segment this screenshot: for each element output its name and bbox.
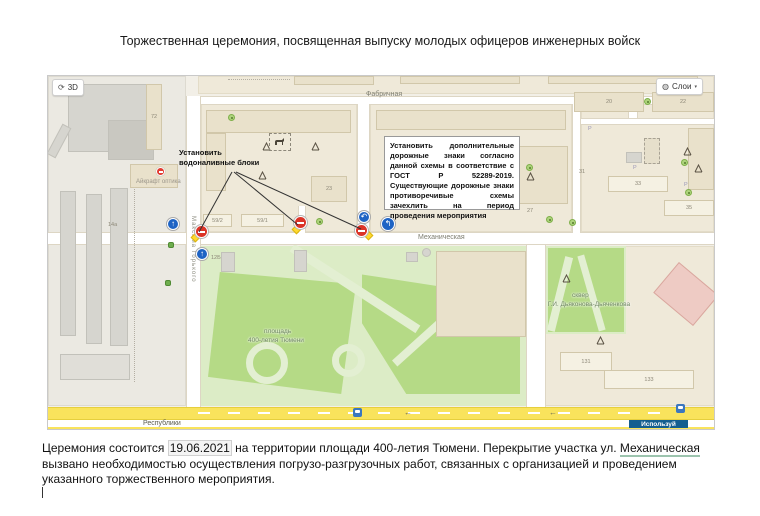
entrance-icon bbox=[165, 280, 171, 286]
parcel-dotted bbox=[134, 186, 135, 382]
playground-icon bbox=[311, 142, 320, 151]
building-131: 131 bbox=[560, 352, 612, 371]
paragraph-text: указанного торжественного мероприятия. bbox=[42, 472, 275, 486]
up-arrow-icon: ↑ bbox=[171, 219, 175, 229]
entrance-icon bbox=[168, 242, 174, 248]
road-center-dashes bbox=[198, 412, 668, 414]
text-cursor bbox=[42, 487, 43, 498]
park-fountain-ring bbox=[332, 344, 365, 377]
building bbox=[294, 76, 374, 85]
body-paragraph: Церемония состоится 19.06.2021 на террит… bbox=[42, 441, 734, 488]
globe-icon: ◍ bbox=[662, 82, 669, 91]
warehouse bbox=[110, 188, 128, 346]
building-label: 23 bbox=[326, 186, 332, 192]
industrial-building bbox=[60, 354, 130, 380]
tree-icon bbox=[228, 114, 235, 121]
playground-icon bbox=[694, 164, 703, 173]
page-title: Торжественная церемония, посвященная вып… bbox=[0, 34, 760, 48]
street-label-mekhanicheskaya: Механическая bbox=[418, 234, 465, 241]
ceremony-date: 19.06.2021 bbox=[168, 440, 232, 456]
traffic-arrow-icon: ← bbox=[404, 408, 412, 417]
layers-label: Слои bbox=[672, 82, 691, 91]
building-59-2: 59/2 bbox=[203, 214, 232, 227]
playground-icon bbox=[596, 336, 605, 345]
warehouse bbox=[60, 191, 76, 336]
bus-stop-icon[interactable] bbox=[353, 408, 362, 417]
street-label-respubliki: Республики bbox=[143, 420, 181, 427]
building-label: 22 bbox=[680, 99, 686, 105]
building-35: 35 bbox=[664, 200, 714, 216]
tree-icon bbox=[569, 219, 576, 226]
annotation-signs-note: Установить дополнительные дорожные знаки… bbox=[384, 136, 520, 210]
tree-icon bbox=[316, 218, 323, 225]
parking-letter: Р bbox=[588, 126, 592, 132]
minor-road bbox=[581, 118, 714, 125]
playground-icon bbox=[562, 274, 571, 283]
warehouse bbox=[86, 194, 102, 344]
building-label: 31 bbox=[579, 169, 585, 175]
building-label: 131 bbox=[581, 359, 590, 365]
document-page: Торжественная церемония, посвященная вып… bbox=[0, 0, 760, 516]
fence-dotted bbox=[228, 79, 290, 80]
park-side-road bbox=[526, 245, 546, 407]
construction-site bbox=[644, 138, 660, 164]
building-59-1: 59/1 bbox=[241, 214, 284, 227]
structure bbox=[294, 250, 307, 272]
paragraph-text: вызвано необходимостью осуществления пог… bbox=[42, 457, 677, 471]
building-label: 72 bbox=[151, 114, 157, 120]
building-label: 59/2 bbox=[212, 218, 223, 224]
building-23: 23 bbox=[311, 176, 347, 202]
small-building bbox=[626, 152, 642, 163]
road-thin-yellow bbox=[48, 427, 714, 429]
playground-icon bbox=[683, 147, 692, 156]
turn-arrow-icon: ↶ bbox=[361, 212, 368, 222]
building-label: 35 bbox=[686, 205, 692, 211]
building-22: 22 bbox=[652, 92, 714, 112]
building-label: 20 bbox=[606, 99, 612, 105]
building-133: 133 bbox=[604, 370, 694, 389]
building-label: 12Б bbox=[211, 255, 221, 261]
annotation-line: Установить bbox=[179, 148, 259, 158]
skver-label-line1: сквер bbox=[572, 292, 589, 299]
map-canvas[interactable]: площадь 400-летия Тюмени сквер им. Г.И. … bbox=[47, 75, 715, 430]
map-3d-button[interactable]: ⟳ 3D bbox=[52, 79, 84, 96]
structure bbox=[422, 248, 431, 257]
parking-letter: Р bbox=[633, 165, 637, 171]
traffic-arrow-icon: ← bbox=[549, 408, 557, 417]
poi-label: Айкрафт оптика bbox=[136, 179, 181, 185]
playground-icon bbox=[258, 171, 267, 180]
parking-letter: Р bbox=[684, 182, 688, 188]
paragraph-text: Церемония состоится bbox=[42, 441, 168, 455]
annotation-water-blocks: Установить водоналивные блоки bbox=[179, 148, 259, 168]
tree-icon bbox=[546, 216, 553, 223]
structure bbox=[406, 252, 418, 262]
annotation-line: водоналивные блоки bbox=[179, 158, 259, 168]
building bbox=[400, 76, 520, 84]
structure bbox=[221, 252, 235, 272]
chevron-down-icon: ▾ bbox=[694, 84, 697, 90]
skver-label-line2: им. Г.И. Дьяконова-Дьяченкова bbox=[536, 301, 630, 308]
rotate-icon: ⟳ bbox=[58, 83, 65, 92]
building-label: 59/1 bbox=[257, 218, 268, 224]
straight-ahead-sign: ↑ bbox=[196, 248, 208, 260]
map-3d-label: 3D bbox=[68, 83, 78, 92]
building bbox=[376, 110, 566, 130]
building bbox=[688, 128, 714, 190]
turn-direction-sign: ↶ bbox=[358, 211, 370, 223]
no-entry-sign bbox=[294, 216, 307, 229]
no-entry-sign bbox=[355, 224, 368, 237]
ad-badge[interactable]: Используй bbox=[629, 420, 688, 428]
park-label-line1: площадь bbox=[264, 328, 291, 335]
no-entry-sign bbox=[195, 225, 208, 238]
building-33: 33 bbox=[608, 176, 668, 192]
park-label-line2: 400-летия Тюмени bbox=[248, 337, 304, 344]
park-fountain-ring bbox=[246, 342, 288, 384]
paragraph-text: на территории площади 400-летия Тюмени. … bbox=[232, 441, 620, 455]
building bbox=[206, 110, 351, 133]
tree-icon bbox=[681, 159, 688, 166]
dog-icon bbox=[274, 138, 286, 146]
tree-icon bbox=[526, 164, 533, 171]
playground-icon bbox=[526, 172, 535, 181]
street-label-fabrichnaya: Фабричная bbox=[366, 91, 402, 98]
building-label: 14а bbox=[108, 222, 117, 228]
building-label: 33 bbox=[635, 181, 641, 187]
tree-icon bbox=[685, 189, 692, 196]
straight-ahead-sign: ↑ bbox=[167, 218, 179, 230]
tree-icon bbox=[644, 98, 651, 105]
building bbox=[436, 251, 526, 337]
street-name-underlined: Механическая bbox=[620, 441, 700, 457]
building-20: 20 bbox=[574, 92, 644, 112]
bus-stop-icon[interactable] bbox=[676, 404, 685, 413]
street-mekhanicheskaya bbox=[48, 232, 714, 245]
poi-marker-icon[interactable] bbox=[156, 167, 165, 176]
building-72: 72 bbox=[146, 84, 162, 150]
building-label: 133 bbox=[644, 377, 653, 383]
building-label: 27 bbox=[527, 208, 533, 214]
layers-button[interactable]: ◍ Слои ▾ bbox=[656, 78, 703, 95]
up-arrow-icon: ↑ bbox=[200, 249, 204, 259]
